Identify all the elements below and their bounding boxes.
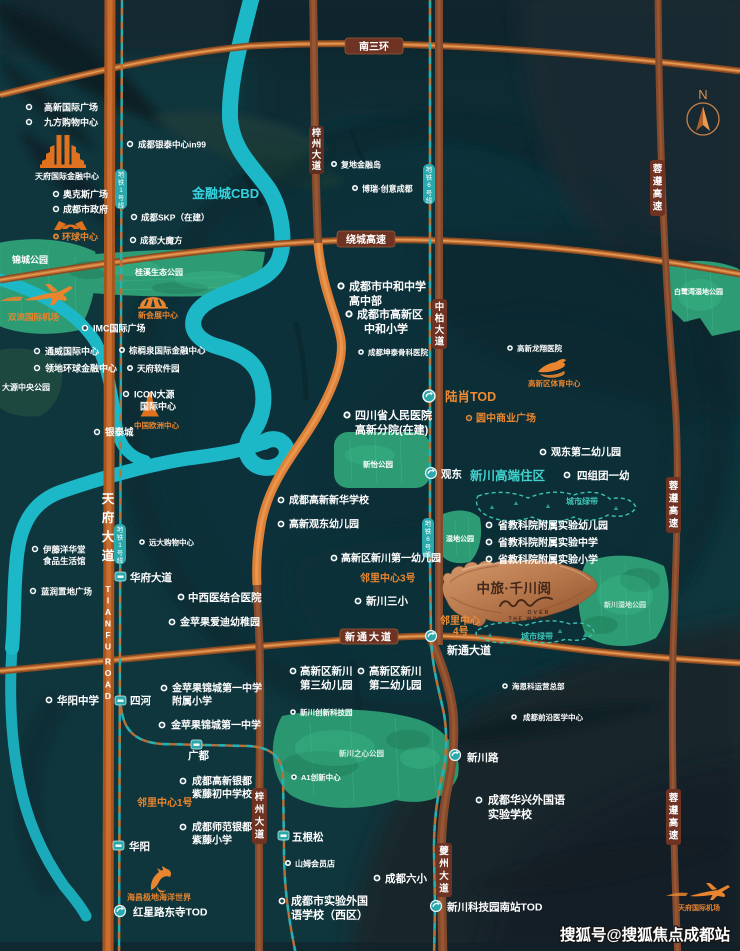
svg-text:梓州大道: 梓州大道 bbox=[311, 127, 322, 172]
svg-text:华府大道: 华府大道 bbox=[130, 571, 172, 584]
svg-text:新川之心公园: 新川之心公园 bbox=[339, 748, 384, 758]
svg-text:观东: 观东 bbox=[441, 468, 462, 481]
svg-text:成都市政府: 成都市政府 bbox=[63, 204, 108, 215]
svg-text:锦城公园: 锦城公园 bbox=[12, 254, 48, 265]
svg-text:新川三小: 新川三小 bbox=[366, 595, 408, 608]
svg-text:A1创新中心: A1创新中心 bbox=[301, 772, 341, 782]
svg-text:成都坤泰骨科医院: 成都坤泰骨科医院 bbox=[368, 347, 428, 357]
svg-text:通威国际中心: 通威国际中心 bbox=[45, 346, 99, 357]
svg-text:华阳: 华阳 bbox=[129, 840, 150, 853]
svg-text:新川创新科技园: 新川创新科技园 bbox=[300, 707, 353, 717]
svg-text:省教科院附属实验中学: 省教科院附属实验中学 bbox=[497, 536, 598, 549]
svg-text:成都六小: 成都六小 bbox=[385, 872, 427, 885]
svg-text:成都市实验外国: 成都市实验外国 bbox=[291, 894, 368, 908]
svg-text:成都大魔方: 成都大魔方 bbox=[140, 236, 183, 246]
svg-text:大源中央公园: 大源中央公园 bbox=[2, 382, 50, 392]
svg-text:远大购物中心: 远大购物中心 bbox=[149, 537, 194, 547]
svg-text:城市绿带: 城市绿带 bbox=[566, 496, 598, 506]
svg-text:省教科院附属实验小学: 省教科院附属实验小学 bbox=[497, 553, 598, 566]
svg-text:四河: 四河 bbox=[130, 695, 151, 707]
svg-text:N: N bbox=[698, 87, 707, 102]
svg-text:成都高新银都: 成都高新银都 bbox=[192, 775, 252, 788]
svg-text:奥克斯广场: 奥克斯广场 bbox=[62, 189, 108, 200]
svg-text:成都市高新区: 成都市高新区 bbox=[357, 307, 423, 321]
svg-text:高新区新川: 高新区新川 bbox=[369, 665, 422, 678]
svg-text:银泰城: 银泰城 bbox=[105, 427, 134, 439]
svg-text:新川路: 新川路 bbox=[467, 751, 499, 764]
svg-text:邻里中心3号: 邻里中心3号 bbox=[360, 572, 416, 585]
svg-text:陆肖TOD: 陆肖TOD bbox=[445, 389, 496, 404]
svg-text:新通大道: 新通大道 bbox=[447, 643, 491, 657]
svg-text:南三环: 南三环 bbox=[359, 40, 389, 53]
svg-text:高新区新川: 高新区新川 bbox=[300, 665, 353, 678]
svg-text:新川湿地公园: 新川湿地公园 bbox=[604, 600, 646, 609]
svg-text:高新区新川第一幼儿园: 高新区新川第一幼儿园 bbox=[341, 552, 441, 565]
svg-text:成都师范银都: 成都师范银都 bbox=[192, 821, 252, 834]
svg-text:四组团一幼: 四组团一幼 bbox=[577, 469, 630, 482]
svg-text:中和小学: 中和小学 bbox=[364, 322, 408, 336]
svg-text:白鹭湾湿地公园: 白鹭湾湿地公园 bbox=[674, 287, 723, 296]
svg-text:双流国际机场: 双流国际机场 bbox=[8, 312, 60, 322]
svg-text:OVER: OVER bbox=[528, 610, 551, 616]
svg-text:四川省人民医院: 四川省人民医院 bbox=[355, 408, 432, 422]
svg-text:绕城高速: 绕城高速 bbox=[346, 233, 386, 246]
svg-text:天府国际机场: 天府国际机场 bbox=[678, 903, 720, 912]
svg-text:环球中心: 环球中心 bbox=[62, 231, 98, 242]
svg-text:成都华兴外国语: 成都华兴外国语 bbox=[488, 793, 565, 807]
svg-text:九方购物中心: 九方购物中心 bbox=[43, 117, 98, 128]
svg-text:紫藤小学: 紫藤小学 bbox=[192, 834, 232, 847]
svg-text:搜狐号@搜狐焦点成都站: 搜狐号@搜狐焦点成都站 bbox=[560, 925, 731, 944]
svg-text:THE WORLD: THE WORLD bbox=[509, 617, 554, 623]
svg-text:附属小学: 附属小学 bbox=[172, 695, 212, 708]
svg-text:天府国际金融中心: 天府国际金融中心 bbox=[35, 171, 99, 181]
svg-text:观东第二幼儿园: 观东第二幼儿园 bbox=[551, 446, 621, 459]
svg-text:伊藤洋华堂: 伊藤洋华堂 bbox=[42, 545, 86, 555]
svg-text:中国欧洲中心: 中国欧洲中心 bbox=[134, 420, 179, 430]
svg-text:湿地公园: 湿地公园 bbox=[446, 534, 474, 543]
svg-text:高新分院(在建): 高新分院(在建) bbox=[355, 423, 429, 437]
svg-text:第二幼儿园: 第二幼儿园 bbox=[369, 679, 422, 692]
svg-text:金苹果锦城第一中学: 金苹果锦城第一中学 bbox=[170, 719, 261, 732]
svg-text:成都高新新华学校: 成都高新新华学校 bbox=[289, 494, 370, 507]
svg-text:国际中心: 国际中心 bbox=[140, 401, 176, 412]
svg-text:成都SKP（在建）: 成都SKP（在建） bbox=[141, 213, 209, 223]
svg-text:新怡公园: 新怡公园 bbox=[363, 459, 393, 469]
svg-text:成都前沿医学中心: 成都前沿医学中心 bbox=[523, 712, 583, 722]
svg-text:邻里中心: 邻里中心 bbox=[440, 614, 480, 627]
svg-text:ICON大源: ICON大源 bbox=[134, 389, 175, 400]
svg-text:金苹果锦城第一中学: 金苹果锦城第一中学 bbox=[171, 682, 262, 695]
svg-text:成都市中和中学: 成都市中和中学 bbox=[349, 279, 426, 293]
svg-text:金苹果爱迪幼稚园: 金苹果爱迪幼稚园 bbox=[179, 616, 260, 629]
svg-text:紫藤初中学校: 紫藤初中学校 bbox=[192, 788, 253, 801]
svg-text:新会展中心: 新会展中心 bbox=[138, 310, 178, 320]
svg-text:4号: 4号 bbox=[453, 626, 469, 638]
svg-text:桂溪生态公园: 桂溪生态公园 bbox=[134, 267, 183, 277]
svg-text:新川高端住区: 新川高端住区 bbox=[470, 468, 546, 483]
svg-text:红星路东寺TOD: 红星路东寺TOD bbox=[133, 906, 208, 919]
svg-text:中旅·千川阅: 中旅·千川阅 bbox=[477, 580, 552, 596]
svg-text:圆中商业广场: 圆中商业广场 bbox=[476, 412, 536, 425]
svg-text:IMC国际广场: IMC国际广场 bbox=[93, 323, 146, 334]
svg-text:金融城CBD: 金融城CBD bbox=[191, 186, 259, 201]
svg-text:博瑞·创意成都: 博瑞·创意成都 bbox=[362, 184, 413, 194]
svg-text:复地金融岛: 复地金融岛 bbox=[340, 160, 381, 170]
svg-text:语学校（西区）: 语学校（西区） bbox=[291, 908, 368, 922]
svg-text:第三幼儿园: 第三幼儿园 bbox=[300, 679, 353, 692]
svg-text:海昌极地海洋世界: 海昌极地海洋世界 bbox=[127, 892, 192, 902]
svg-text:邻里中心1号: 邻里中心1号 bbox=[137, 796, 193, 809]
svg-text:实验学校: 实验学校 bbox=[488, 807, 533, 821]
svg-text:高新国际广场: 高新国际广场 bbox=[44, 102, 98, 113]
svg-text:领地环球金融中心: 领地环球金融中心 bbox=[45, 363, 117, 374]
svg-text:棕榈泉国际金融中心: 棕榈泉国际金融中心 bbox=[128, 346, 206, 356]
svg-text:中西医结合医院: 中西医结合医院 bbox=[188, 591, 262, 604]
svg-text:高新龙翔医院: 高新龙翔医院 bbox=[517, 343, 562, 353]
svg-text:省教科院附属实验幼儿园: 省教科院附属实验幼儿园 bbox=[497, 519, 608, 532]
svg-text:高新区体育中心: 高新区体育中心 bbox=[528, 378, 581, 388]
svg-text:新通大道: 新通大道 bbox=[345, 631, 393, 644]
svg-text:山姆会员店: 山姆会员店 bbox=[295, 859, 335, 869]
svg-text:高新观东幼儿园: 高新观东幼儿园 bbox=[289, 518, 359, 531]
svg-text:城市绿带: 城市绿带 bbox=[521, 631, 553, 641]
svg-text:海恩科运营总部: 海恩科运营总部 bbox=[512, 681, 565, 691]
svg-text:成都银泰中心in99: 成都银泰中心in99 bbox=[138, 140, 206, 150]
svg-text:中柏大道: 中柏大道 bbox=[435, 301, 445, 348]
svg-text:食品生活馆: 食品生活馆 bbox=[43, 556, 86, 566]
svg-text:五根松: 五根松 bbox=[292, 831, 324, 844]
svg-text:蓝润置地广场: 蓝润置地广场 bbox=[41, 587, 93, 597]
svg-text:天府软件园: 天府软件园 bbox=[137, 364, 180, 374]
svg-text:华阳中学: 华阳中学 bbox=[57, 694, 99, 707]
svg-text:新川科技园南站TOD: 新川科技园南站TOD bbox=[447, 901, 543, 914]
svg-text:高中部: 高中部 bbox=[349, 294, 382, 308]
svg-text:广都: 广都 bbox=[188, 749, 209, 762]
